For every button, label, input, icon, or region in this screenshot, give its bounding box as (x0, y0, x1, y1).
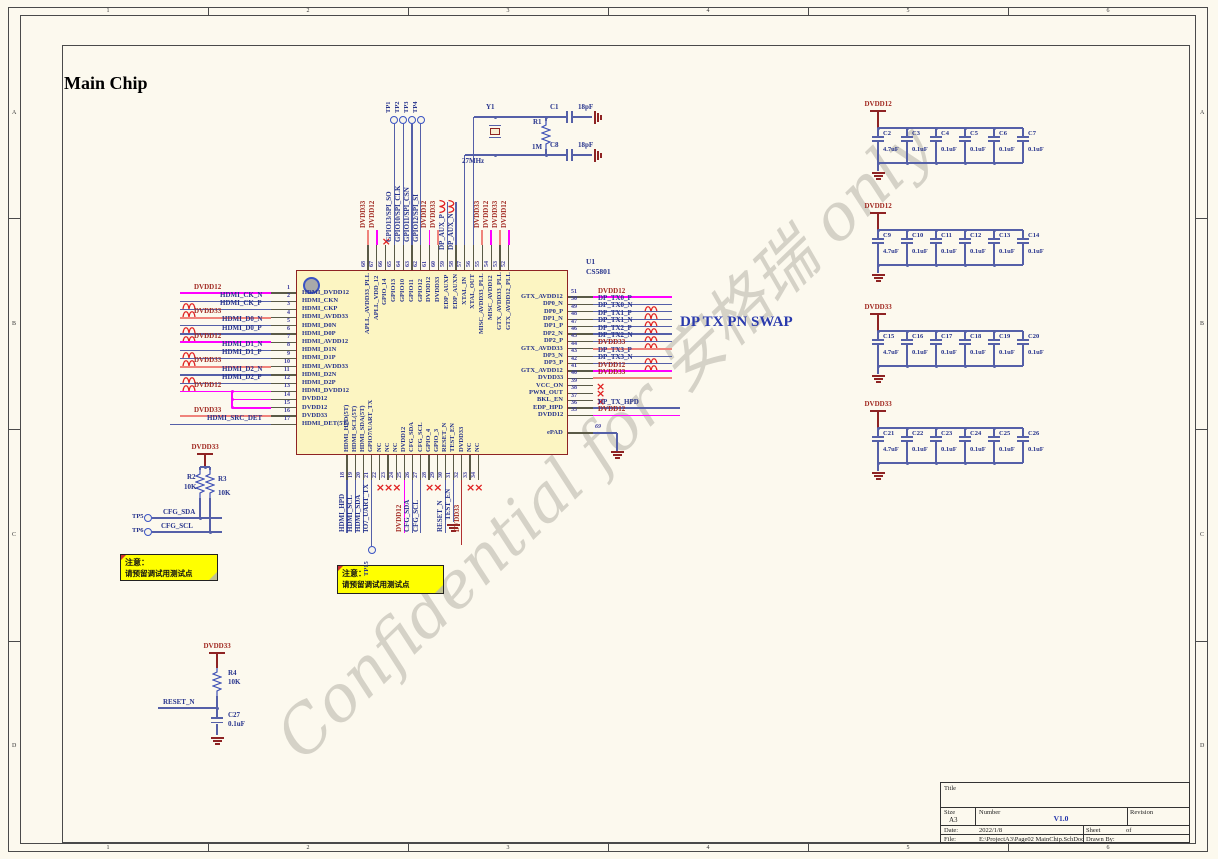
wire[interactable] (152, 531, 222, 532)
wire[interactable] (271, 350, 296, 351)
pin-name[interactable]: DVDD33 (459, 427, 466, 452)
net-label[interactable]: DVDD12 (501, 201, 508, 228)
component-value[interactable]: 27MHz (462, 158, 484, 165)
net-label[interactable]: RESET_N (163, 699, 195, 706)
pin-number[interactable]: 41 (571, 363, 577, 369)
wire[interactable] (508, 230, 510, 245)
wire[interactable] (1022, 345, 1023, 366)
net-label[interactable]: DVDD33 (474, 201, 481, 228)
pin-number[interactable]: 17 (284, 416, 290, 422)
wire[interactable] (216, 654, 217, 668)
pin-number[interactable]: 62 (413, 261, 419, 267)
pin-name[interactable]: HDMI_DVDD12 (302, 388, 349, 395)
wire[interactable] (877, 463, 878, 471)
net-label[interactable]: CFG_SCL (161, 523, 193, 530)
wire[interactable] (877, 411, 878, 428)
pin-name[interactable]: XTAL_IN (462, 277, 469, 305)
pin-number[interactable]: 55 (475, 261, 481, 267)
wire[interactable] (474, 116, 567, 117)
pin-name[interactable]: GTX_AVDD33_PLL (497, 272, 504, 330)
component-value[interactable]: 0.1uF (970, 147, 986, 154)
test-point[interactable] (144, 514, 152, 522)
pin-name[interactable]: TEST_EN (450, 423, 457, 452)
pin-number[interactable]: 42 (571, 356, 577, 362)
pin-number[interactable]: 37 (571, 393, 577, 399)
wire[interactable] (964, 244, 965, 265)
resistor[interactable] (212, 668, 222, 696)
pin-number[interactable]: 36 (571, 400, 577, 406)
net-label[interactable]: HDMI_D0_P (222, 325, 262, 332)
pin-name[interactable]: HDMI_DVDD12 (302, 290, 349, 297)
net-label[interactable]: IO7_UART_TX (363, 484, 370, 532)
wire[interactable] (367, 230, 369, 245)
component-designator[interactable]: C21 (883, 431, 894, 438)
wire[interactable] (877, 345, 878, 366)
pin-number[interactable]: 15 (284, 400, 290, 406)
pin-name[interactable]: XTAL_OUT (470, 274, 477, 309)
pin-name[interactable]: HDMI_D2N (302, 372, 336, 379)
test-point[interactable] (417, 116, 425, 124)
wire[interactable] (152, 517, 222, 518)
pin-number[interactable]: 33 (463, 472, 469, 478)
pin-number[interactable]: 7 (287, 334, 290, 340)
net-label[interactable]: HDMI_HPD (339, 494, 346, 532)
wire[interactable] (935, 442, 936, 463)
wire[interactable] (877, 142, 878, 163)
pin-number[interactable]: 59 (440, 261, 446, 267)
pin-number[interactable]: 57 (457, 261, 463, 267)
net-label[interactable]: DVDD33 (430, 201, 437, 228)
component-designator[interactable]: C13 (999, 233, 1010, 240)
component-value[interactable]: 0.1uF (941, 147, 957, 154)
component-value[interactable]: 0.1uF (912, 447, 928, 454)
wire[interactable] (1022, 442, 1023, 463)
power-port-label[interactable]: DVDD12 (865, 101, 892, 108)
wire[interactable] (877, 111, 878, 128)
component-designator[interactable]: C4 (941, 131, 949, 138)
wire[interactable] (878, 264, 1023, 265)
pin-number[interactable]: 18 (340, 472, 346, 478)
pin-number[interactable]: 10 (284, 359, 290, 365)
net-label[interactable]: DP_AUX_P (439, 214, 446, 250)
pin-name[interactable]: NC (385, 443, 392, 452)
net-label[interactable]: DVDD33 (194, 407, 221, 414)
component-value[interactable]: 0.1uF (970, 447, 986, 454)
wire[interactable] (935, 345, 936, 366)
net-label[interactable]: GPIO10/SPI_CLK (395, 186, 402, 242)
pin-number[interactable]: 19 (348, 472, 354, 478)
wire[interactable] (271, 309, 296, 310)
wire[interactable] (935, 142, 936, 163)
net-label[interactable]: GPIO11/SPI_CSN (404, 187, 411, 242)
pin-number[interactable]: 29 (430, 472, 436, 478)
wire[interactable] (478, 455, 479, 480)
test-point-label[interactable]: TP5 (132, 514, 144, 521)
resistor[interactable] (195, 470, 205, 498)
net-label[interactable]: DVDD12 (369, 201, 376, 228)
test-point-label[interactable]: TP6 (132, 528, 144, 535)
net-label[interactable]: HDMI_SRC_DET (207, 415, 262, 422)
net-label[interactable]: CFG_SDA (163, 509, 195, 516)
component-designator[interactable]: C23 (941, 431, 952, 438)
component-designator[interactable]: C26 (1028, 431, 1039, 438)
schematic-canvas[interactable]: Confidential for 安格瑞 only Main Chip U1 C… (0, 0, 1218, 859)
pin-name[interactable]: DVDD33 (538, 375, 563, 382)
test-point-label[interactable]: TP4 (413, 101, 420, 113)
pin-number[interactable]: 64 (396, 261, 402, 267)
pin-name[interactable]: MISC_AVDD33_PLL (479, 273, 486, 334)
pin-name[interactable]: GPIO_3 (434, 429, 441, 452)
component-designator[interactable]: Y1 (486, 104, 495, 111)
wire[interactable] (158, 707, 217, 708)
pin-name[interactable]: NC (393, 443, 400, 452)
net-label[interactable]: DVDD33 (360, 201, 367, 228)
pin-number[interactable]: 25 (397, 472, 403, 478)
wire[interactable] (568, 415, 593, 416)
net-label[interactable]: DVDD33 (492, 201, 499, 228)
component-designator[interactable]: C9 (883, 233, 891, 240)
component-designator[interactable]: C3 (912, 131, 920, 138)
pin-name[interactable]: DVDD12 (302, 396, 327, 403)
pin-name[interactable]: GPIO11 (409, 279, 416, 302)
pin-name[interactable]: HDMI_CKP (302, 306, 337, 313)
net-label[interactable]: GPIO12/SPI_SI (413, 194, 420, 242)
component-value[interactable]: 4.7uF (883, 147, 899, 154)
pin-name[interactable]: CFG_SCL (418, 422, 425, 452)
pin-number[interactable]: 20 (356, 472, 362, 478)
wire[interactable] (877, 314, 878, 331)
test-point-label[interactable]: TP1 (386, 101, 393, 113)
wire[interactable] (403, 245, 404, 270)
component-designator[interactable]: C7 (1028, 131, 1036, 138)
net-label[interactable]: HDMI_D0_N (222, 316, 262, 323)
pin-name[interactable]: RESET_N (442, 423, 449, 452)
pin-name[interactable]: GPIO12 (418, 279, 425, 302)
component-designator[interactable]: C25 (999, 431, 1010, 438)
net-label[interactable]: DVDD33 (194, 357, 221, 364)
net-label[interactable]: HDMI_SCL (347, 495, 354, 532)
wire[interactable] (877, 213, 878, 230)
pin-name[interactable]: HDMI_HPD(5T) (344, 405, 351, 452)
pin-number[interactable]: 13 (284, 383, 290, 389)
pin-name[interactable]: HDMI_D1N (302, 347, 336, 354)
wire[interactable] (878, 162, 1023, 163)
pin-name[interactable]: DVDD12 (426, 277, 433, 302)
component-value[interactable]: 0.1uF (228, 721, 245, 728)
wire[interactable] (993, 244, 994, 265)
wire[interactable] (566, 149, 568, 161)
component-value[interactable]: 4.7uF (883, 249, 899, 256)
pin-number[interactable]: 34 (471, 472, 477, 478)
wire[interactable] (271, 424, 296, 425)
power-port-label[interactable]: DVDD33 (204, 643, 231, 650)
wire[interactable] (429, 230, 431, 245)
power-port-label[interactable]: DVDD33 (192, 444, 219, 451)
component-value[interactable]: 0.1uF (941, 249, 957, 256)
pin-number[interactable]: 49 (571, 304, 577, 310)
pin-number[interactable]: 53 (493, 261, 499, 267)
pin-number[interactable]: 22 (372, 472, 378, 478)
pin-name[interactable]: GPIO13 (391, 279, 398, 302)
pin-number[interactable]: 31 (446, 472, 452, 478)
component-designator[interactable]: C6 (999, 131, 1007, 138)
component-value[interactable]: 1M (532, 144, 542, 151)
pin-number[interactable]: 63 (405, 261, 411, 267)
pin-number[interactable]: 60 (431, 261, 437, 267)
pin-number[interactable]: 52 (501, 261, 507, 267)
wire[interactable] (482, 245, 483, 270)
component-designator[interactable]: C22 (912, 431, 923, 438)
net-label[interactable]: DVDD33 (454, 505, 461, 532)
wire[interactable] (878, 427, 1023, 428)
test-point[interactable] (408, 116, 416, 124)
test-point[interactable] (368, 546, 376, 554)
net-label[interactable]: DVDD33 (194, 308, 221, 315)
wire[interactable] (271, 292, 296, 293)
pin-number[interactable]: 45 (571, 333, 577, 339)
pin-number[interactable]: 30 (438, 472, 444, 478)
pin-name[interactable]: NC (475, 443, 482, 452)
pin-name[interactable]: HDMI_DET(5T) (302, 421, 349, 428)
wire[interactable] (964, 442, 965, 463)
pin-number[interactable]: 54 (484, 261, 490, 267)
pin-name[interactable]: HDMI_AVDD33 (302, 314, 348, 321)
component-value[interactable]: 0.1uF (941, 447, 957, 454)
component-designator[interactable]: C24 (970, 431, 981, 438)
pin-number[interactable]: 44 (571, 341, 577, 347)
pin-number[interactable]: 1 (287, 285, 290, 291)
wire[interactable] (271, 325, 296, 326)
component-value[interactable]: 0.1uF (912, 249, 928, 256)
wire[interactable] (593, 415, 680, 417)
wire[interactable] (371, 480, 372, 546)
net-label[interactable]: HDMI_CK_N (220, 292, 262, 299)
pin-number[interactable]: 11 (284, 367, 290, 373)
pin-name[interactable]: HDMI_D0P (302, 331, 336, 338)
component-value[interactable]: 4.7uF (883, 447, 899, 454)
wire[interactable] (271, 301, 296, 302)
test-point-label[interactable]: TP3 (404, 101, 411, 113)
pin-number[interactable]: 50 (571, 296, 577, 302)
pin-number[interactable]: 47 (571, 319, 577, 325)
net-label[interactable]: CFG_SDA (404, 500, 411, 532)
pin-number[interactable]: 35 (571, 407, 577, 413)
component-designator[interactable]: C17 (941, 334, 952, 341)
component-value[interactable]: 0.1uF (941, 350, 957, 357)
wire[interactable] (232, 399, 271, 401)
component-designator[interactable]: C15 (883, 334, 894, 341)
net-label[interactable]: DVDD12 (194, 333, 221, 340)
pin-number[interactable]: 24 (389, 472, 395, 478)
pin-number[interactable]: 28 (422, 472, 428, 478)
component-value[interactable]: 0.1uF (999, 249, 1015, 256)
pin-name[interactable]: BKL_EN (537, 397, 563, 404)
pin-name[interactable]: MISC_AVDD12 (488, 275, 495, 320)
test-point-label[interactable]: TP15 (364, 561, 371, 576)
pin-number[interactable]: 66 (378, 261, 384, 267)
pin-number[interactable]: 8 (287, 342, 290, 348)
pin-number[interactable]: 21 (364, 472, 370, 478)
pin-name[interactable]: HDMI_SDA(5T) (360, 405, 367, 452)
pin-number[interactable]: 65 (387, 261, 393, 267)
wire[interactable] (878, 462, 1023, 463)
pin-number[interactable]: 5 (287, 318, 290, 324)
component-designator[interactable]: C16 (912, 334, 923, 341)
wire[interactable] (906, 442, 907, 463)
pin-name[interactable]: GTX_AVDD12_PLL (506, 272, 513, 330)
wire[interactable] (394, 245, 395, 270)
pin-number[interactable]: 6 (287, 326, 290, 332)
net-label[interactable]: HDMI_CK_P (220, 300, 262, 307)
pin-name[interactable]: EDP_AUXN (453, 274, 460, 309)
component-designator[interactable]: C18 (970, 334, 981, 341)
wire[interactable] (461, 480, 462, 545)
component-value[interactable]: 0.1uF (912, 147, 928, 154)
pin-name[interactable]: GPIO10 (400, 279, 407, 302)
wire[interactable] (566, 111, 568, 123)
component-value[interactable]: 0.1uF (970, 249, 986, 256)
component-designator[interactable]: R1 (533, 119, 542, 126)
pin-number[interactable]: 9 (287, 351, 290, 357)
pin-number[interactable]: 2 (287, 293, 290, 299)
pin-name[interactable]: NC (377, 443, 384, 452)
component-value[interactable]: 0.1uF (999, 147, 1015, 154)
pin-number[interactable]: 46 (571, 326, 577, 332)
component-designator[interactable]: C10 (912, 233, 923, 240)
component-designator[interactable]: R4 (228, 670, 237, 677)
pin-name[interactable]: DVDD33 (435, 277, 442, 302)
net-label[interactable]: DVDD12 (598, 406, 625, 413)
wire[interactable] (489, 137, 501, 139)
wire[interactable] (877, 265, 878, 273)
pin-name[interactable]: DVDD12 (302, 405, 327, 412)
pin-number[interactable]: 38 (571, 385, 577, 391)
wire[interactable] (993, 442, 994, 463)
wire[interactable] (878, 330, 1023, 331)
wire[interactable] (491, 245, 492, 270)
power-port-label[interactable]: DVDD33 (865, 304, 892, 311)
chip-part-number[interactable]: CS5801 (586, 268, 611, 276)
pin-number[interactable]: 3 (287, 301, 290, 307)
pin-number[interactable]: 67 (369, 261, 375, 267)
wire[interactable] (170, 424, 271, 425)
crystal[interactable] (490, 128, 500, 135)
component-value[interactable]: 0.1uF (970, 350, 986, 357)
wire[interactable] (232, 407, 271, 409)
pin-name[interactable]: DVDD33 (302, 413, 327, 420)
pin-name[interactable]: HDMI_AVDD12 (302, 339, 348, 346)
wire[interactable] (906, 142, 907, 163)
component-designator[interactable]: C11 (941, 233, 952, 240)
wire[interactable] (993, 345, 994, 366)
component-value[interactable]: 10K (228, 679, 240, 686)
pin-name[interactable]: APLL_AVDD33_PLL (365, 273, 372, 334)
wire[interactable] (935, 244, 936, 265)
wire[interactable] (489, 125, 501, 127)
pin-number[interactable]: 69 (595, 424, 601, 430)
pin-name[interactable]: EDP_AUXP (444, 275, 451, 309)
component-designator[interactable]: C19 (999, 334, 1010, 341)
wire[interactable] (877, 244, 878, 265)
wire[interactable] (216, 724, 217, 735)
chip-designator[interactable]: U1 (586, 258, 595, 266)
pin-name[interactable]: HDMI_D1P (302, 355, 336, 362)
net-label[interactable]: HDMI_D1_P (222, 349, 262, 356)
power-port-label[interactable]: DVDD33 (865, 401, 892, 408)
wire[interactable] (376, 230, 378, 245)
pin-number[interactable]: 39 (571, 378, 577, 384)
wire[interactable] (180, 391, 271, 393)
component-value[interactable]: 0.1uF (999, 350, 1015, 357)
net-label[interactable]: TEST_EN (445, 489, 452, 520)
net-label[interactable]: DVDD12 (421, 201, 428, 228)
pin-number[interactable]: 61 (422, 261, 428, 267)
component-value[interactable]: 0.1uF (1028, 147, 1044, 154)
wire[interactable] (964, 345, 965, 366)
pin-number[interactable]: 4 (287, 310, 290, 316)
component-designator[interactable]: C5 (970, 131, 978, 138)
pin-name[interactable]: DVDD12 (401, 427, 408, 452)
pin-number[interactable]: 40 (571, 370, 577, 376)
wire[interactable] (209, 498, 210, 532)
wire[interactable] (420, 480, 421, 533)
wire[interactable] (464, 155, 465, 245)
net-label[interactable]: DVDD12 (194, 284, 221, 291)
pin-name[interactable]: DP0_N (543, 301, 563, 308)
net-label[interactable]: HDMI_D1_N (222, 341, 262, 348)
component-value[interactable]: 0.1uF (1028, 447, 1044, 454)
pin-name[interactable]: DVDD12 (538, 412, 563, 419)
pin-number[interactable]: 26 (405, 472, 411, 478)
component-value[interactable]: 18pF (578, 142, 593, 149)
wire[interactable] (499, 230, 501, 245)
wire[interactable] (1022, 142, 1023, 163)
component-designator[interactable]: C8 (550, 142, 559, 149)
pin-name[interactable]: HDMI_AVDD33 (302, 364, 348, 371)
pin-name[interactable]: NC (467, 443, 474, 452)
pin-number[interactable]: 56 (466, 261, 472, 267)
pin-number[interactable]: 12 (284, 375, 290, 381)
net-label[interactable]: HDMI_D2_P (222, 374, 262, 381)
pin-name[interactable]: HDMI_D2P (302, 380, 336, 387)
net-label[interactable]: CFG_SCL (413, 500, 420, 532)
test-point-label[interactable]: TP2 (395, 101, 402, 113)
wire[interactable] (211, 717, 223, 719)
pin-name[interactable]: DP2_P (544, 338, 563, 345)
pin-name[interactable]: GPIO7/UART_TX (368, 400, 375, 452)
wire[interactable] (573, 116, 592, 117)
wire[interactable] (877, 163, 878, 171)
pin-number[interactable]: 23 (381, 472, 387, 478)
wire[interactable] (271, 342, 296, 343)
pin-name[interactable]: DP3_P (544, 360, 563, 367)
wire[interactable] (271, 317, 296, 318)
pin-name[interactable]: HDMI_SCL(5T) (352, 406, 359, 452)
component-value[interactable]: 18pF (578, 104, 593, 111)
net-label[interactable]: DP_AUX_N (448, 213, 455, 250)
wire[interactable] (616, 433, 617, 451)
component-designator[interactable]: C27 (228, 712, 240, 719)
pin-name[interactable]: HDMI_CKN (302, 298, 338, 305)
pin-name[interactable]: CFG_SDA (409, 422, 416, 452)
component-designator[interactable]: C20 (1028, 334, 1039, 341)
wire[interactable] (878, 127, 1023, 128)
debug-testpoint-note[interactable]: 注意： 请预留调试用测试点 (120, 554, 218, 581)
wire[interactable] (199, 498, 200, 518)
wire[interactable] (508, 245, 509, 270)
wire[interactable] (593, 432, 617, 433)
debug-testpoint-note[interactable]: 注意： 请预留调试用测试点 (337, 565, 444, 594)
